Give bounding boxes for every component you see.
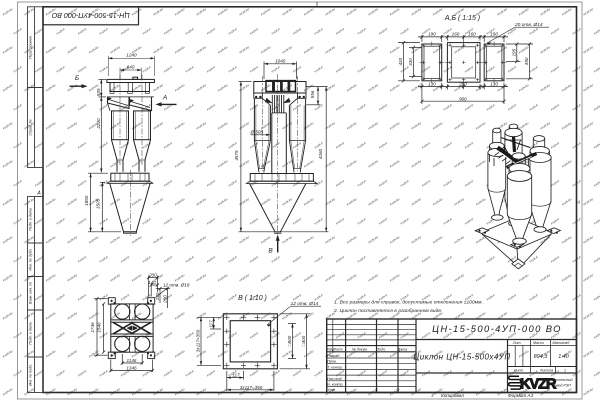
svg-text:1746: 1746 [90,322,95,333]
svg-text:Утв.: Утв. [327,388,335,392]
svg-text:430: 430 [398,57,403,65]
svg-text:Лист: Лист [513,369,523,373]
svg-text:ЦН-15-500-4УП-000 ВО: ЦН-15-500-4УП-000 ВО [432,323,562,334]
svg-text:190: 190 [428,31,436,36]
svg-text:200: 200 [162,295,167,304]
svg-text:160: 160 [452,31,460,36]
svg-text:□800: □800 [287,335,292,346]
svg-text:Подп.: Подп. [376,347,386,351]
svg-text:Копировал: Копировал [441,393,464,398]
svg-text:Пров.: Пров. [327,360,336,364]
svg-text:В ( 1:10 ): В ( 1:10 ) [238,295,267,302]
svg-text:Б: Б [75,75,79,82]
svg-text:160: 160 [468,31,476,36]
svg-text:Т. контр.: Т. контр. [327,365,343,369]
svg-text:Справ. №: Справ. № [29,119,33,135]
svg-text:Котельный: Котельный [553,378,573,382]
svg-text:KVZR: KVZR [520,377,557,393]
svg-text:Взам. инв. №: Взам. инв. № [29,282,33,304]
svg-text:А: А [162,95,167,102]
svg-text:Инв. № дубл.: Инв. № дубл. [29,248,33,270]
svg-text:Дата: Дата [397,347,407,351]
svg-text:завод РЭП: завод РЭП [552,384,571,388]
svg-text:Ø 508: Ø 508 [250,130,264,135]
svg-text:3х117=350: 3х117=350 [196,329,201,352]
svg-text:Лит.: Лит. [512,341,521,345]
svg-text:1: 1 [564,369,566,373]
svg-text:А,Б ( 1:15 ): А,Б ( 1:15 ) [444,15,480,22]
svg-text:200: 200 [148,273,157,278]
svg-text:390: 390 [524,57,529,65]
svg-text:Инв. № подл.: Инв. № подл. [29,364,33,386]
svg-text:330: 330 [408,58,413,66]
svg-text:ЦН-15-500-4УП-000 ВО: ЦН-15-500-4УП-000 ВО [51,11,129,20]
svg-text:4360: 4360 [318,148,323,159]
svg-text:140: 140 [148,280,156,285]
svg-text:640: 640 [127,65,135,70]
svg-text:Циклон ЦН-15-500х4УП: Циклон ЦН-15-500х4УП [413,353,510,362]
svg-text:556: 556 [310,90,315,98]
svg-text:2. Циклон поставляется в разоб: 2. Циклон поставляется в разобранном вид… [333,308,443,314]
svg-text:900: 900 [459,96,467,101]
svg-text:4575: 4575 [234,150,239,161]
svg-text:1:40: 1:40 [558,354,569,360]
svg-text:Н. контр.: Н. контр. [327,383,343,387]
svg-text:Масштаб: Масштаб [553,341,571,345]
svg-text:190: 190 [490,31,498,36]
svg-text:1505: 1505 [96,198,101,209]
svg-text:Перв. примен.: Перв. примен. [29,35,33,59]
svg-text:535: 535 [96,88,101,96]
svg-text:1: 1 [431,393,433,398]
svg-text:1. Все размеры для справок, до: 1. Все размеры для справок, допустимые о… [334,300,483,306]
svg-text:140: 140 [155,292,160,300]
svg-text:1240: 1240 [126,53,137,58]
svg-text:3х117=350: 3х117=350 [240,385,263,390]
svg-text:1346: 1346 [126,365,137,370]
svg-text:Масса: Масса [533,341,544,345]
svg-text:В: В [268,248,273,255]
svg-text:117: 117 [232,373,240,378]
svg-text:12 отв. Ø18: 12 отв. Ø18 [163,283,190,288]
svg-text:1546: 1546 [96,322,101,333]
svg-text:Листов: Листов [539,369,553,373]
svg-text:1890: 1890 [84,195,89,206]
svg-text:Лист: Лист [332,347,342,351]
svg-text:Формат А3: Формат А3 [508,393,534,398]
svg-text:2230: 2230 [96,118,101,130]
svg-text:Разраб.: Разраб. [327,354,340,358]
svg-text:□400: □400 [301,335,306,346]
svg-text:А: А [576,200,580,205]
svg-text:1146: 1146 [127,358,137,363]
svg-text:195: 195 [512,48,517,56]
svg-text:Подп. и дата: Подп. и дата [29,208,33,231]
svg-text:260: 260 [458,82,467,87]
svg-text:А: А [36,191,41,197]
svg-text:Нач.отд.: Нач.отд. [327,377,342,381]
svg-text:Подп. и дата: Подп. и дата [29,322,33,345]
svg-text:1040: 1040 [275,58,286,63]
svg-text:894,3: 894,3 [534,354,548,360]
svg-text:№ докум.: № докум. [352,347,368,351]
svg-text:117: 117 [208,320,213,328]
